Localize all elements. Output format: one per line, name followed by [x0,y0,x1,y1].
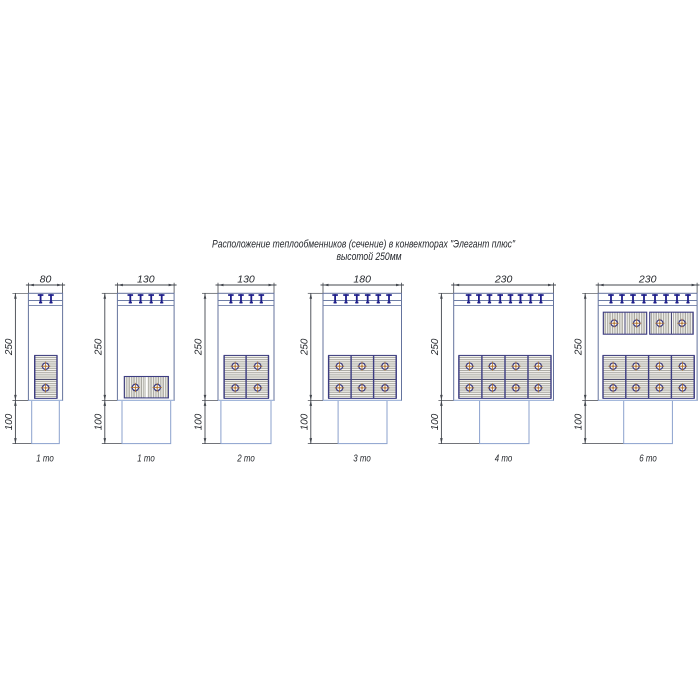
svg-text:250: 250 [3,339,15,357]
svg-text:100: 100 [298,414,310,431]
svg-text:100: 100 [92,414,104,431]
svg-text:250: 250 [429,339,441,357]
svg-text:250: 250 [193,339,205,357]
svg-text:250: 250 [298,339,310,357]
svg-text:230: 230 [494,273,513,285]
svg-text:100: 100 [193,414,205,431]
svg-text:130: 130 [237,273,255,285]
svg-text:высотой 250мм: высотой 250мм [337,251,402,263]
svg-text:250: 250 [573,339,585,357]
svg-text:130: 130 [137,273,155,285]
svg-text:230: 230 [638,273,657,285]
svg-text:1 то: 1 то [36,453,54,465]
svg-text:100: 100 [573,414,585,431]
svg-text:2 то: 2 то [236,453,254,465]
svg-text:80: 80 [40,273,52,285]
svg-text:Расположение теплообменников (: Расположение теплообменников (сечение) в… [212,239,516,251]
svg-text:100: 100 [3,414,15,431]
svg-text:6 то: 6 то [639,453,657,465]
svg-text:100: 100 [429,414,441,431]
svg-text:4 то: 4 то [495,453,513,465]
svg-text:3 то: 3 то [353,453,371,465]
svg-text:1 то: 1 то [137,453,155,465]
svg-text:180: 180 [353,273,371,285]
svg-text:250: 250 [92,339,104,357]
